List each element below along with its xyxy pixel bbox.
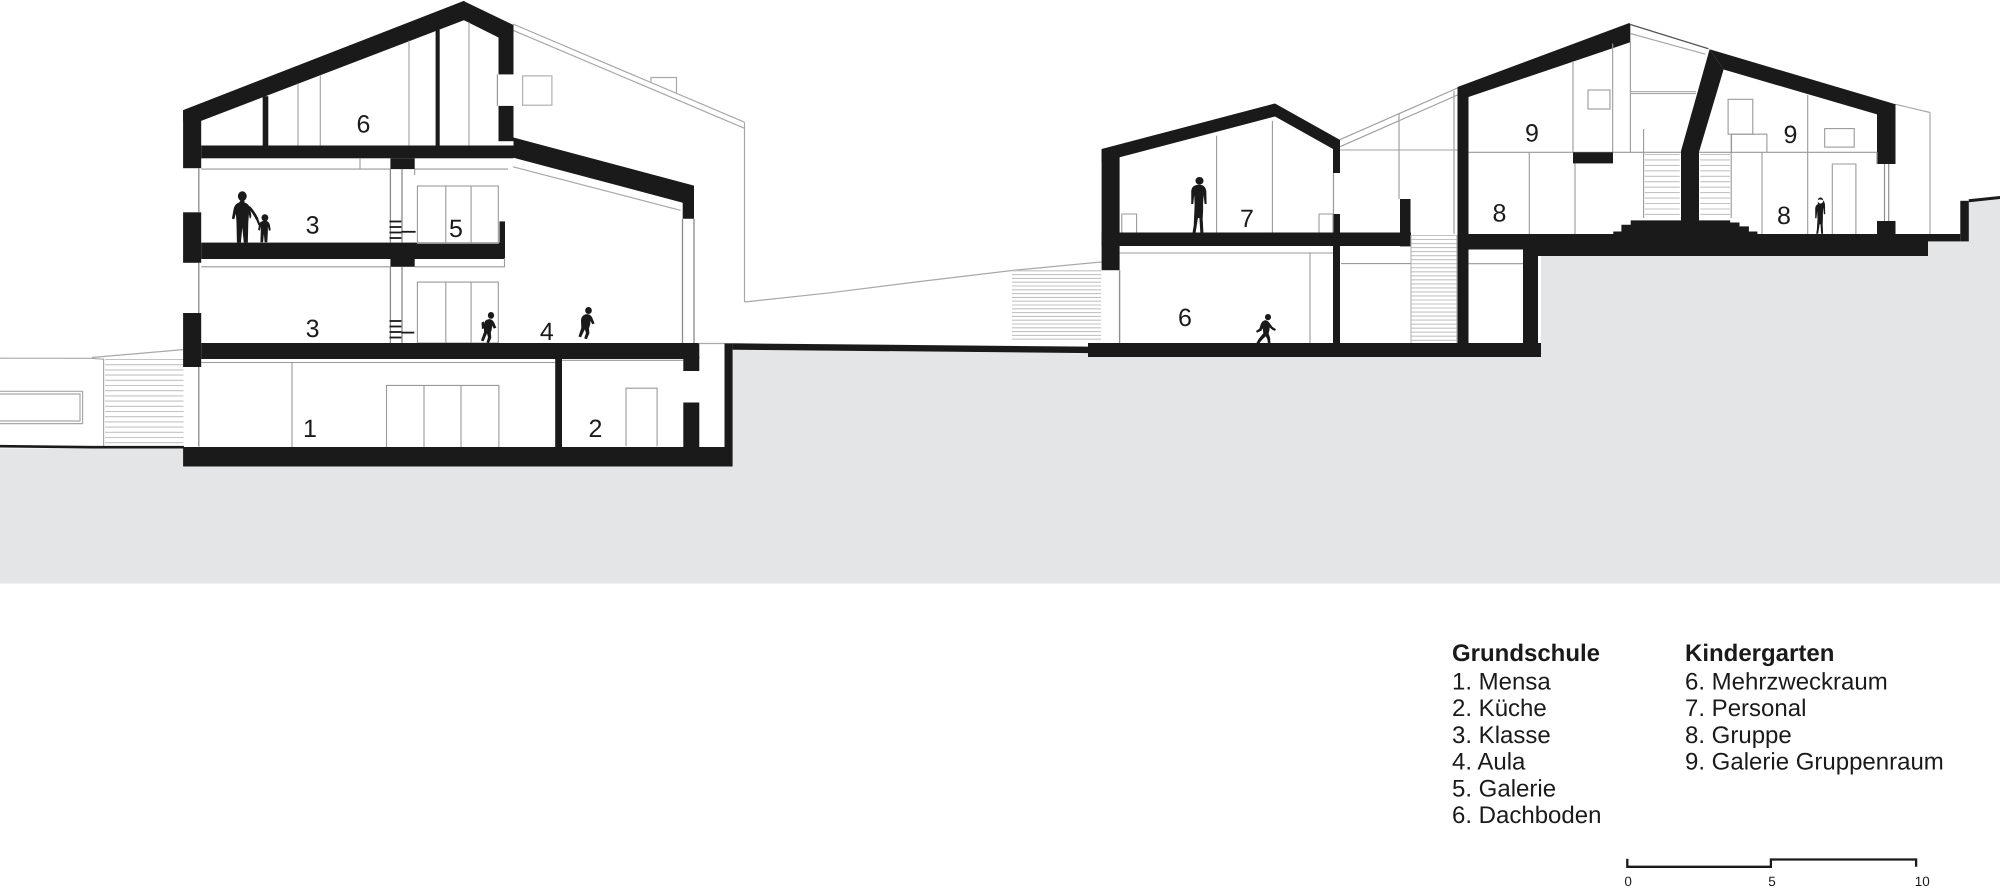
svg-text:2: 2 (589, 415, 603, 443)
svg-text:8: 8 (1493, 200, 1507, 228)
svg-text:6: 6 (1178, 304, 1192, 332)
svg-text:10: 10 (1915, 874, 1930, 889)
svg-text:6. Mehrzweckraum: 6. Mehrzweckraum (1685, 669, 1888, 696)
svg-text:2. Küche: 2. Küche (1452, 695, 1547, 722)
svg-text:4: 4 (540, 318, 554, 346)
svg-text:Grundschule: Grundschule (1452, 640, 1600, 667)
svg-text:Kindergarten: Kindergarten (1685, 640, 1834, 667)
svg-text:8. Gruppe: 8. Gruppe (1685, 722, 1792, 749)
svg-text:1. Mensa: 1. Mensa (1452, 669, 1551, 696)
svg-text:5. Galerie: 5. Galerie (1452, 775, 1556, 802)
svg-text:1: 1 (303, 415, 317, 443)
svg-text:7: 7 (1240, 205, 1254, 233)
svg-text:6: 6 (356, 111, 370, 139)
svg-text:4. Aula: 4. Aula (1452, 749, 1526, 776)
svg-text:3: 3 (306, 212, 320, 240)
svg-text:7. Personal: 7. Personal (1685, 695, 1806, 722)
svg-text:0: 0 (1624, 874, 1632, 889)
svg-text:5: 5 (1768, 874, 1776, 889)
svg-text:9: 9 (1784, 121, 1798, 149)
svg-text:5: 5 (449, 215, 463, 243)
svg-text:9: 9 (1525, 120, 1539, 148)
svg-text:3: 3 (306, 315, 320, 343)
svg-text:6. Dachboden: 6. Dachboden (1452, 802, 1601, 829)
svg-text:3. Klasse: 3. Klasse (1452, 722, 1551, 749)
svg-text:9. Galerie Gruppenraum: 9. Galerie Gruppenraum (1685, 749, 1944, 776)
svg-text:8: 8 (1777, 202, 1791, 230)
